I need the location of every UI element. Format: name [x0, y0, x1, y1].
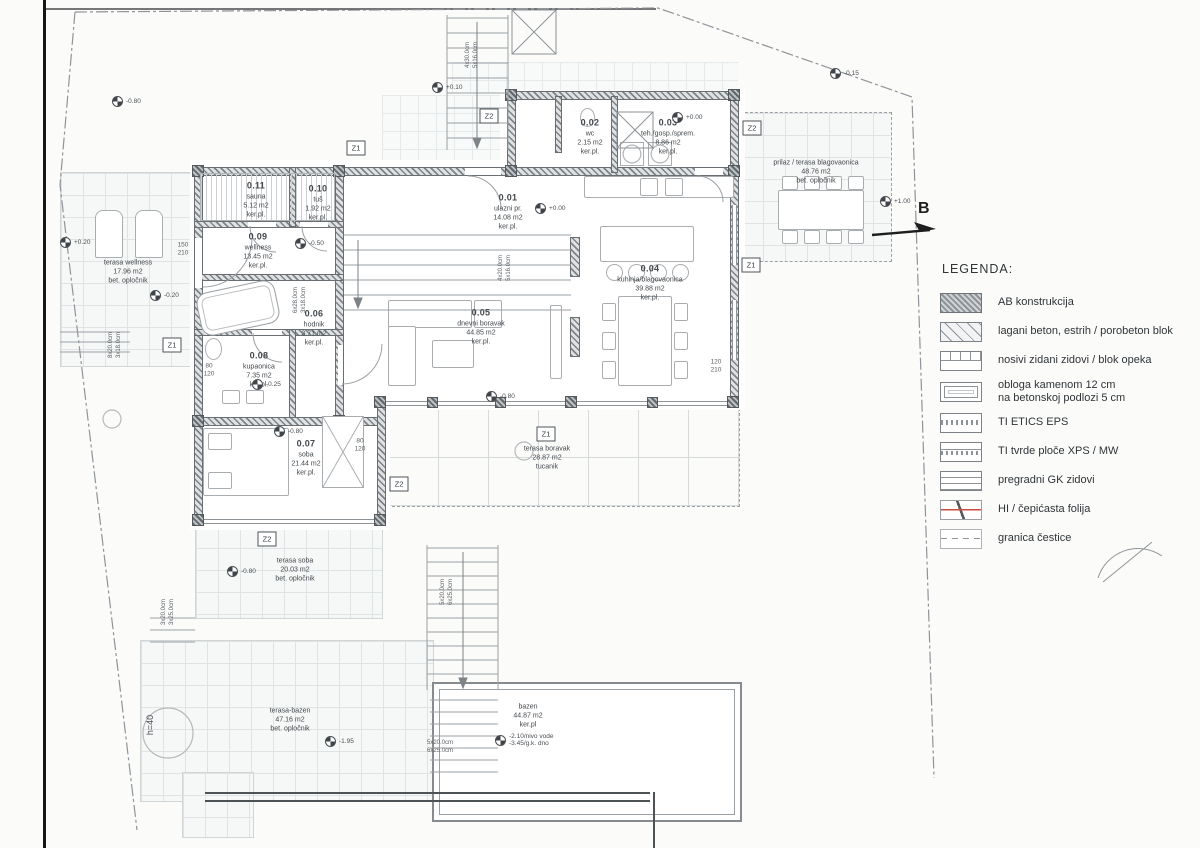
dining-chair — [602, 361, 616, 379]
dining-chair — [674, 303, 688, 321]
wall-segment — [556, 97, 561, 152]
terrace-chair — [848, 230, 864, 244]
legend-item: TI ETICS EPS — [940, 412, 1198, 433]
level-icon — [672, 112, 683, 123]
terrace-chair — [804, 230, 820, 244]
dining-chair — [602, 332, 616, 350]
window-east — [732, 300, 737, 360]
stair-dim: 5x20.0cm6x25.0cm — [439, 579, 455, 605]
terrace-label-bazen-terasa: terasa-bazen 47.16 m2 bet. opločnik — [270, 706, 311, 733]
wall-segment — [508, 92, 515, 175]
pier — [506, 166, 516, 176]
pier — [428, 398, 437, 407]
level-marker: -0.80 — [486, 391, 515, 402]
room-label-hodnik: 0.06 hodnik 3.71 m2 ker.pl. — [301, 309, 326, 348]
door-opening — [338, 345, 343, 385]
level-marker: -1.95 — [325, 736, 354, 747]
level-icon — [830, 68, 841, 79]
legend-item: TI tvrde ploče XPS / MW — [940, 441, 1198, 462]
room-label-dnevni: 0.05 dnevni boravak 44.85 m2 ker.pl. — [457, 308, 504, 347]
retaining-wall — [653, 792, 655, 848]
room-label-wellness: 0.09 wellness 13.45 m2 ker.pl. — [243, 232, 272, 271]
terrace-chair — [826, 230, 842, 244]
level-icon — [432, 82, 443, 93]
pier — [506, 90, 516, 100]
pier — [566, 397, 576, 407]
section-marker: Z1 — [347, 141, 366, 156]
page-binding-edge — [43, 0, 46, 848]
pool-label: bazen 44.87 m2 ker.pl — [513, 702, 542, 729]
window-east — [732, 205, 737, 265]
level-icon — [112, 96, 123, 107]
door-opening — [248, 222, 276, 227]
terrace-label-prilaz: prilaz / terasa blagovaonica 48.76 m2 be… — [773, 158, 858, 185]
pillow — [208, 472, 232, 489]
opening-dim: 80120 — [355, 438, 366, 455]
stair-dim: 4x30.0cm5x16.0cm — [464, 42, 480, 68]
section-marker: Z1 — [537, 427, 556, 442]
toilet-bathroom — [205, 338, 222, 360]
level-marker: -0.50 — [295, 238, 324, 249]
level-marker: +1.00 — [880, 196, 910, 207]
kitchen-counter — [584, 176, 734, 198]
level-icon — [880, 196, 891, 207]
sun-lounger — [135, 210, 163, 258]
legend-swatch-etics-eps — [940, 413, 982, 433]
pier — [729, 166, 739, 176]
dining-table — [618, 296, 672, 386]
wall-segment — [378, 400, 385, 525]
level-icon — [227, 566, 238, 577]
kitchen-sink — [640, 178, 658, 196]
wall-segment — [195, 275, 343, 280]
level-icon — [274, 426, 285, 437]
level-icon — [495, 735, 506, 746]
door-opening — [252, 330, 282, 335]
level-icon — [535, 203, 546, 214]
terrace-table — [778, 190, 864, 230]
section-marker: Z2 — [480, 109, 499, 124]
legend-title: LEGENDA: — [942, 262, 1198, 276]
section-marker: Z2 — [258, 532, 277, 547]
room-label-wc: 0.02 wc 2.15 m2 ker.pl. — [577, 118, 602, 157]
door-opening — [300, 222, 328, 227]
terrace-chair — [782, 230, 798, 244]
room-label-sauna: 0.11 sauna 5.12 m2 ker.pl. — [243, 181, 268, 220]
opening-dim: 80120 — [204, 363, 215, 380]
legend-swatch-lagani-beton — [940, 322, 982, 342]
legend-item: nosivi zidani zidovi / blok opeka — [940, 350, 1198, 371]
room-label-kuhinja: 0.04 kuhinja/blagovaonica 39.88 m2 ker.p… — [617, 264, 682, 303]
pier — [729, 90, 739, 100]
dining-chair — [674, 361, 688, 379]
wall-pier — [571, 318, 579, 356]
kitchen-hob — [665, 178, 683, 196]
retaining-wall — [205, 800, 650, 802]
stair-dim: 5x20.0cm6x25.0cm — [427, 739, 453, 755]
section-marker: Z1 — [742, 258, 761, 273]
wall-segment — [508, 92, 738, 99]
legend-swatch-xps-mw — [940, 442, 982, 462]
opening-dim: 120210 — [711, 359, 722, 376]
door-opening — [695, 168, 723, 175]
legend-swatch-gk-zidovi — [940, 471, 982, 491]
level-marker: +0.00 — [535, 203, 565, 214]
legend-swatch-granica — [940, 529, 982, 549]
level-icon — [150, 290, 161, 301]
level-icon — [486, 391, 497, 402]
room-label-teh: 0.03 teh./gosp./sprem. 8.86 m2 ker.pl. — [641, 118, 695, 157]
hedge-height-label: h=40 — [145, 715, 155, 735]
legend-swatch-obloga-kamenom — [940, 382, 982, 402]
level-marker: +0.00 — [672, 112, 702, 123]
lower-garden-paving — [182, 772, 254, 838]
pier — [193, 515, 203, 525]
level-marker: -0.20 — [150, 290, 179, 301]
legend-swatch-zidani-zidovi — [940, 351, 982, 371]
legend-item: obloga kamenom 12 cmna betonskoj podlozi… — [940, 379, 1198, 404]
legend-item: AB konstrukcija — [940, 292, 1198, 313]
legend: LEGENDA: AB konstrukcija lagani beton, e… — [940, 262, 1198, 557]
level-marker: -0.80 — [274, 426, 303, 437]
tv-bench — [550, 305, 562, 379]
stair-dim: 6x28.0cm3x18.0cm — [292, 287, 308, 313]
pier — [728, 397, 738, 407]
level-marker: -0.15 — [830, 68, 859, 79]
kitchen-island — [600, 226, 694, 262]
wall-segment — [290, 330, 295, 425]
terrace-label-wellness: terasa wellness 17.96 m2 bet. opločnik — [104, 258, 152, 285]
pier — [334, 166, 344, 176]
sink — [246, 390, 264, 404]
pier — [375, 397, 385, 407]
legend-item: HI / čepićasta folija — [940, 499, 1198, 520]
sun-lounger — [95, 210, 123, 258]
legend-item: pregradni GK zidovi — [940, 470, 1198, 491]
section-marker: Z2 — [390, 477, 409, 492]
level-marker: +0.20 — [60, 237, 90, 248]
retaining-wall — [205, 792, 650, 794]
level-marker: -0.25 — [252, 379, 281, 390]
terrace-label-boravak: terasa boravak 28.87 m2 tucanik — [524, 444, 570, 471]
wall-pier — [571, 238, 579, 276]
room-label-ulazni: 0.01 ulazni pr. 14.08 m2 ker.pl. — [493, 193, 522, 232]
legend-item: granica čestice — [940, 528, 1198, 549]
section-arrow-label: B — [918, 200, 930, 218]
floor-plan-sheet: 0.01 ulazni pr. 14.08 m2 ker.pl. 0.02 wc… — [0, 0, 1200, 848]
level-icon — [60, 237, 71, 248]
wall-segment — [612, 97, 617, 172]
stair-dim: 3x20.0cm3x25.0cm — [160, 599, 176, 625]
pool-level-marker: -2.10/nivo vode-3.45/g.k. dno — [495, 733, 553, 747]
pier — [648, 398, 657, 407]
section-marker: Z1 — [163, 338, 182, 353]
level-marker: -0.80 — [227, 566, 256, 577]
level-icon — [325, 736, 336, 747]
pier — [193, 416, 203, 426]
opening-dim: 150210 — [178, 242, 189, 259]
door-opening — [195, 238, 202, 288]
legend-swatch-ab-konstrukcija — [940, 293, 982, 313]
door-opening — [465, 168, 501, 175]
pillow — [208, 433, 232, 450]
entry-path-paving — [452, 62, 738, 92]
entry-court-paving — [382, 95, 508, 168]
room-label-tus: 0.10 tuš 1.92 m2 ker.pl. — [305, 184, 330, 223]
stair-dim: 4x20.0cm5x16.0cm — [497, 255, 513, 281]
legend-item: lagani beton, estrih / porobeton blok — [940, 321, 1198, 342]
stair-dim: 8x20.0cm3x18.0cm — [107, 332, 123, 358]
dining-chair — [602, 303, 616, 321]
legend-swatch-hi-folija — [940, 500, 982, 520]
level-marker: +0.10 — [432, 82, 462, 93]
dining-chair — [674, 332, 688, 350]
terrace-label-soba: terasa soba 20.03 m2 bet. opločnik — [275, 556, 314, 583]
room-label-soba: 0.07 soba 21.44 m2 ker.pl. — [291, 439, 320, 478]
level-marker: -0.80 — [112, 96, 141, 107]
sofa — [388, 326, 416, 386]
sink — [222, 390, 240, 404]
glass-facade-bedroom — [195, 519, 381, 524]
pier — [375, 515, 385, 525]
section-marker: Z2 — [743, 121, 762, 136]
level-icon — [252, 379, 263, 390]
level-icon — [295, 238, 306, 249]
